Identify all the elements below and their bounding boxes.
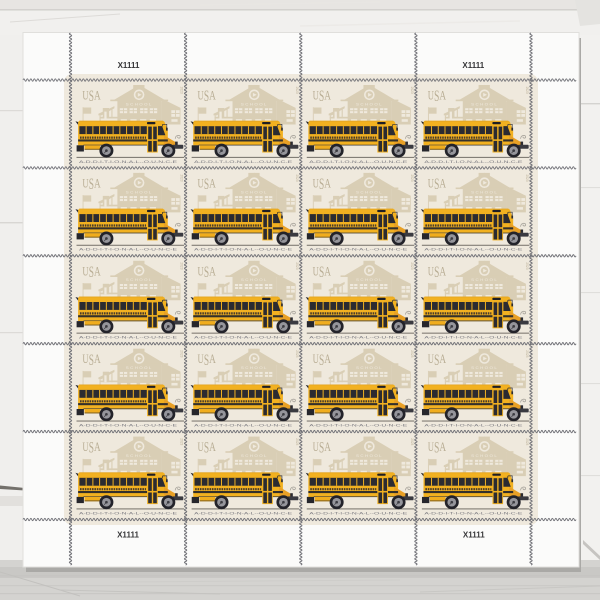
svg-text:X1111: X1111 bbox=[117, 531, 139, 540]
svg-text:X1111: X1111 bbox=[118, 61, 140, 70]
svg-text:X1111: X1111 bbox=[462, 61, 484, 70]
svg-text:X1111: X1111 bbox=[463, 531, 485, 540]
